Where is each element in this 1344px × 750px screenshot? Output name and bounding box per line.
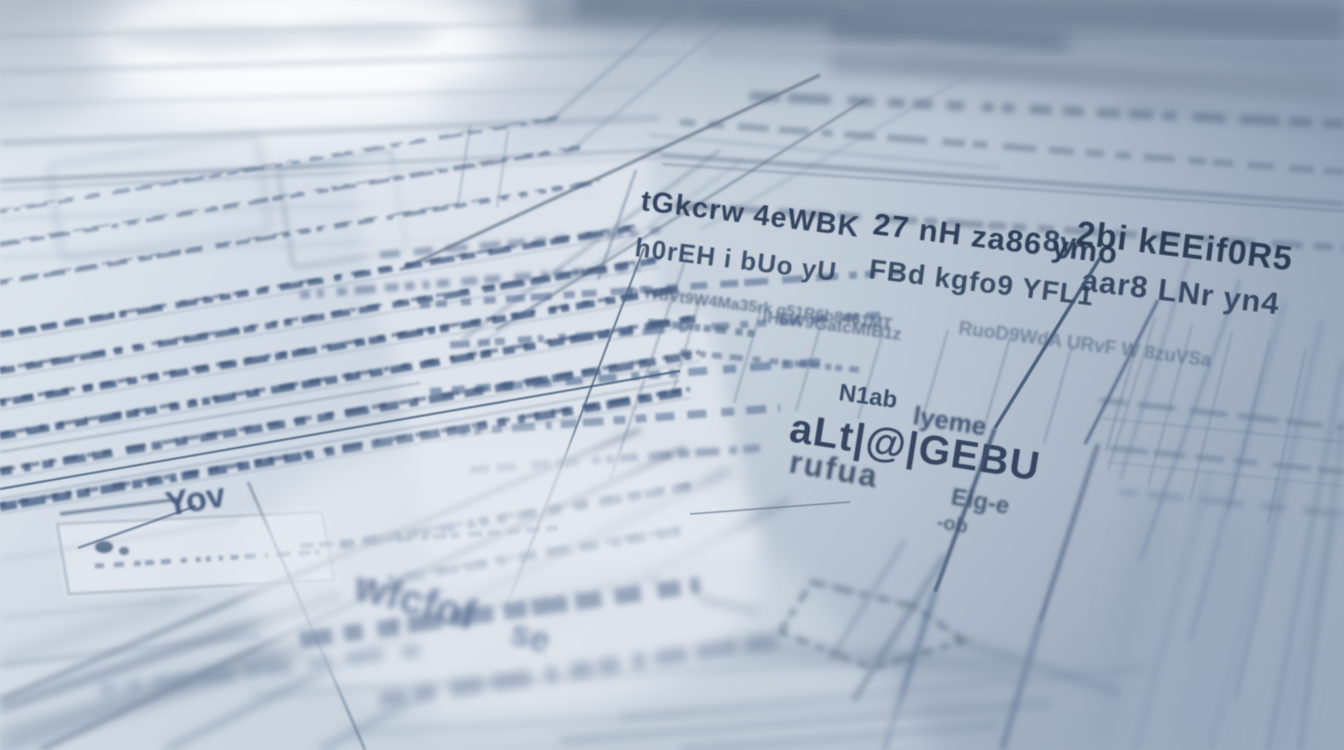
svg-text:8y: 8y [1041, 224, 1078, 261]
